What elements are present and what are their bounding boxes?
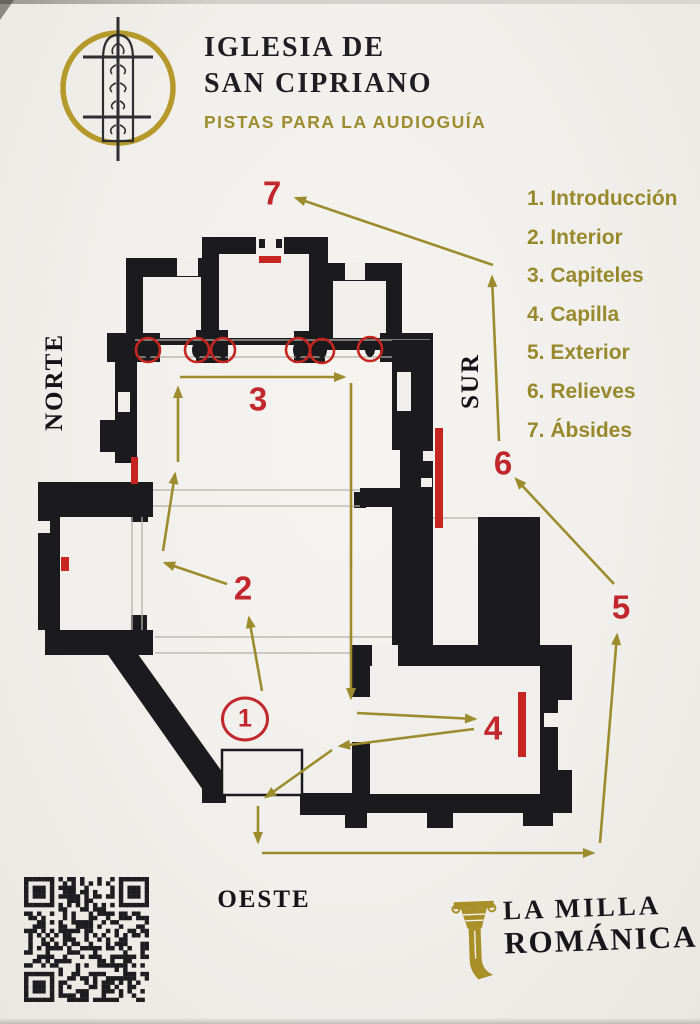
audio-guide-poster: IGLESIA DE SAN CIPRIANO PISTAS PARA LA A…	[0, 0, 700, 1024]
church-floor-plan	[0, 0, 700, 1024]
route-marker-3: 3	[249, 383, 267, 416]
route-marker-5: 5	[612, 591, 630, 624]
south-wall-and-tower	[354, 340, 540, 655]
compass-north: NORTE	[41, 333, 69, 431]
brand-line2: ROMÁNICA	[504, 919, 699, 962]
compass-south: SUR	[457, 353, 485, 409]
route-marker-1-label: 1	[238, 705, 252, 734]
compass-west: OESTE	[217, 886, 310, 914]
west-porch	[222, 750, 302, 795]
south-chapel	[345, 645, 572, 828]
brand-logo: LA MILLA ROMÁNICA	[451, 889, 699, 988]
apse-walls	[126, 237, 402, 350]
route-marker-2: 2	[234, 572, 252, 605]
route-marker-1: 1	[221, 697, 269, 742]
column-capital-icon	[451, 896, 500, 988]
brand-text: LA MILLA ROMÁNICA	[502, 889, 698, 962]
qr-code	[24, 877, 149, 1002]
route-marker-6: 6	[494, 447, 512, 480]
route-marker-4: 4	[484, 712, 502, 745]
route-marker-7: 7	[263, 177, 281, 210]
